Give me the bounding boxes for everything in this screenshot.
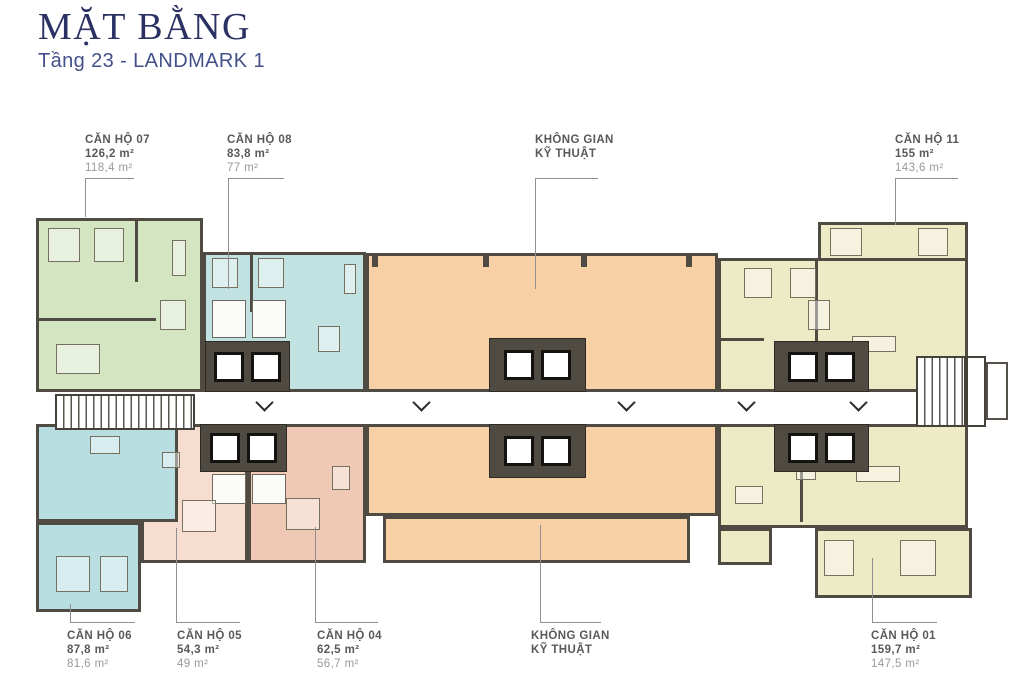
staircase-left — [55, 394, 195, 430]
elevator-core-bottom-right — [774, 424, 869, 472]
furniture-bed — [744, 268, 772, 298]
corridor-arrow — [617, 393, 635, 411]
furniture-table — [318, 326, 340, 352]
unit-number: CĂN HỘ 08 — [227, 133, 292, 147]
furniture-table — [162, 452, 180, 468]
unit-label-01: CĂN HỘ 01 159,7 m² 147,5 m² — [871, 629, 936, 671]
leader-line-technical-bottom — [540, 525, 601, 623]
wall-pillar — [372, 253, 378, 267]
area-net: 77 m² — [227, 161, 292, 175]
area-net: 81,6 m² — [67, 657, 132, 671]
elevator-car — [504, 350, 534, 380]
elevator-car — [214, 352, 244, 382]
furniture-bed — [56, 556, 90, 592]
unit-number: CĂN HỘ 04 — [317, 629, 382, 643]
technical-label-line2: KỸ THUẬT — [531, 643, 610, 657]
corridor-arrow — [737, 393, 755, 411]
wall-pillar — [686, 253, 692, 267]
elevator-car — [247, 433, 277, 463]
unit-number: CĂN HỘ 06 — [67, 629, 132, 643]
elevator-core-top-center — [489, 338, 586, 392]
unit-label-07: CĂN HỘ 07 126,2 m² 118,4 m² — [85, 133, 150, 175]
balcony-right — [986, 362, 1008, 420]
technical-space-label-bottom: KHÔNG GIAN KỸ THUẬT — [531, 629, 610, 657]
technical-space-bottom-lower — [383, 516, 690, 563]
furniture-bed — [94, 228, 124, 262]
unit-label-11: CĂN HỘ 11 155 m² 143,6 m² — [895, 133, 959, 175]
bathroom — [252, 474, 286, 504]
area-gross: 155 m² — [895, 147, 959, 161]
unit-number: CĂN HỘ 07 — [85, 133, 150, 147]
area-net: 143,6 m² — [895, 161, 959, 175]
staircase-right — [916, 356, 966, 427]
elevator-core-top-left — [205, 341, 290, 392]
area-gross: 159,7 m² — [871, 643, 936, 657]
elevator-car — [541, 350, 571, 380]
unit-label-08: CĂN HỘ 08 83,8 m² 77 m² — [227, 133, 292, 175]
leader-line-unit-11 — [895, 178, 958, 225]
stair-shaft — [966, 356, 986, 427]
technical-label-line2: KỸ THUẬT — [535, 147, 614, 161]
area-net: 118,4 m² — [85, 161, 150, 175]
corridor-arrow — [412, 393, 430, 411]
unit-label-05: CĂN HỘ 05 54,3 m² 49 m² — [177, 629, 242, 671]
furniture-table — [808, 300, 830, 330]
area-net: 147,5 m² — [871, 657, 936, 671]
area-gross: 62,5 m² — [317, 643, 382, 657]
elevator-car — [788, 433, 818, 463]
leader-line-technical-top — [535, 178, 598, 289]
floor-plan-drawing — [0, 0, 1020, 675]
furniture-table — [160, 300, 186, 330]
technical-space-label-top: KHÔNG GIAN KỸ THUẬT — [535, 133, 614, 161]
elevator-core-top-right — [774, 341, 869, 392]
elevator-car — [504, 436, 534, 466]
furniture-bed — [918, 228, 948, 256]
furniture-bed — [830, 228, 862, 256]
area-gross: 54,3 m² — [177, 643, 242, 657]
interior-wall — [718, 338, 764, 341]
area-net: 56,7 m² — [317, 657, 382, 671]
elevator-core-bottom-left — [200, 424, 287, 472]
bathroom — [252, 300, 286, 338]
elevator-core-bottom-center — [489, 424, 586, 478]
unit-label-04: CĂN HỘ 04 62,5 m² 56,7 m² — [317, 629, 382, 671]
unit-label-06: CĂN HỘ 06 87,8 m² 81,6 m² — [67, 629, 132, 671]
area-gross: 87,8 m² — [67, 643, 132, 657]
elevator-car — [541, 436, 571, 466]
furniture-bed — [56, 344, 100, 374]
leader-line-unit-06 — [70, 604, 135, 623]
furniture-desk — [735, 486, 763, 504]
interior-wall — [135, 218, 138, 282]
area-gross: 83,8 m² — [227, 147, 292, 161]
elevator-car — [251, 352, 281, 382]
furniture-table — [90, 436, 120, 454]
elevator-car — [210, 433, 240, 463]
furniture-bed — [286, 498, 320, 530]
area-net: 49 m² — [177, 657, 242, 671]
floor-plan-page: MẶT BẰNG Tầng 23 - LANDMARK 1 — [0, 0, 1020, 675]
leader-line-unit-08 — [228, 178, 284, 289]
furniture-bed — [790, 268, 816, 298]
leader-line-unit-04 — [315, 527, 378, 623]
unit-number: CĂN HỘ 05 — [177, 629, 242, 643]
corridor-arrow — [255, 393, 273, 411]
bathroom — [212, 474, 246, 504]
leader-line-unit-01 — [872, 558, 937, 623]
interior-wall — [36, 520, 143, 523]
unit-01-area-ext-left — [718, 528, 772, 565]
technical-label-line1: KHÔNG GIAN — [531, 629, 610, 643]
technical-label-line1: KHÔNG GIAN — [535, 133, 614, 147]
corridor-arrow — [849, 393, 867, 411]
area-gross: 126,2 m² — [85, 147, 150, 161]
elevator-car — [825, 433, 855, 463]
leader-line-unit-07 — [85, 178, 134, 217]
elevator-car — [788, 352, 818, 382]
furniture-sofa — [172, 240, 186, 276]
furniture-bed — [48, 228, 80, 262]
wall-pillar — [483, 253, 489, 267]
unit-number: CĂN HỘ 11 — [895, 133, 959, 147]
leader-line-unit-05 — [176, 528, 240, 623]
elevator-car — [825, 352, 855, 382]
bathroom — [212, 300, 246, 338]
interior-wall — [36, 318, 156, 321]
furniture-table — [332, 466, 350, 490]
furniture-bed — [100, 556, 128, 592]
furniture-sofa — [344, 264, 356, 294]
furniture-bed — [824, 540, 854, 576]
unit-number: CĂN HỘ 01 — [871, 629, 936, 643]
